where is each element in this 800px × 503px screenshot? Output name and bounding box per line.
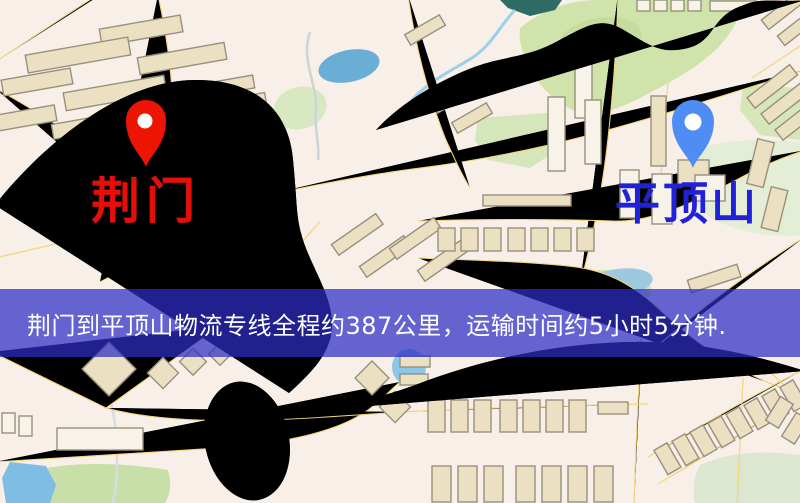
route-banner-text: 荆门到平顶山物流专线全程约387公里，运输时间约5小时5分钟. — [27, 306, 726, 341]
destination-label: 平顶山 — [615, 181, 759, 226]
route-banner: 荆门到平顶山物流专线全程约387公里，运输时间约5小时5分钟. — [0, 289, 800, 357]
origin-label: 荆门 — [91, 177, 201, 226]
origin-pin-hole — [138, 114, 153, 129]
map-canvas — [0, 0, 800, 503]
map-screenshot: 荆门 平顶山 荆门到平顶山物流专线全程约387公里，运输时间约5小时5分钟. — [0, 0, 800, 503]
destination-pin-hole — [685, 114, 702, 131]
